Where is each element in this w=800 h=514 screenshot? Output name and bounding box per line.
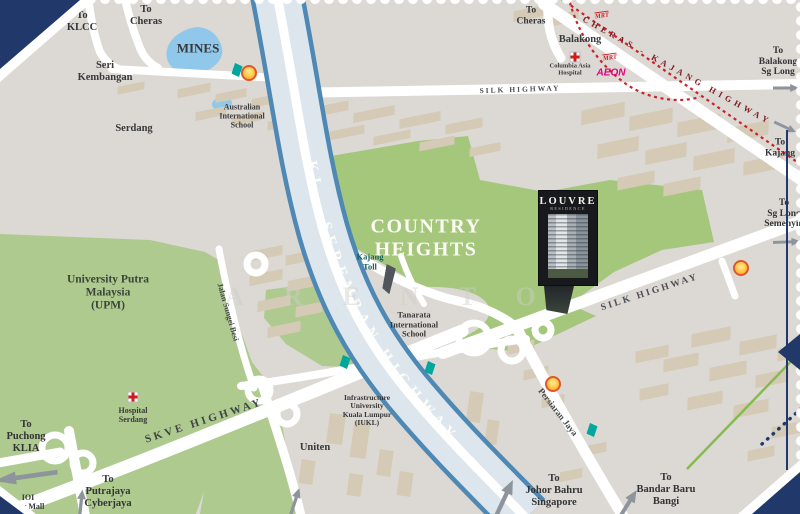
arrow-uniten-south [286, 487, 303, 514]
label-to-johor: To Johor Bahru Singapore [525, 473, 582, 509]
building-block [373, 129, 410, 145]
building-block [755, 369, 788, 388]
building-block [347, 473, 364, 497]
label-kajang-toll: Kajang Toll [357, 252, 384, 271]
label-to-bandar-baru: To Bandar Baru Bangi [636, 472, 695, 508]
building-block [663, 176, 701, 196]
building-block [311, 100, 348, 117]
label-seri-kembangan: Seri Kembangan [78, 60, 133, 84]
label-to-putrajaya: To Putrajaya Cyberjaya [84, 474, 131, 510]
building-block [484, 419, 499, 444]
building-block [251, 245, 282, 261]
building-block [399, 111, 441, 129]
road-skve [0, 331, 462, 514]
building-block [739, 334, 777, 355]
petronas-station-icon [587, 423, 598, 437]
building-block [267, 116, 294, 130]
building-block [445, 117, 482, 134]
label-silk-highway-top: SILK HIGHWAY [479, 84, 560, 95]
label-hospital-serdang: Hospital Serdang [119, 406, 148, 424]
label-mines: MINES [177, 42, 220, 57]
label-tanarata: Tanarata International School [390, 311, 438, 340]
mrt-logo: MRT [603, 54, 618, 63]
building-block [629, 108, 673, 131]
label-columbia-hospital: Columbia Asia Hospital [550, 63, 591, 78]
location-map: KL - SEREMBAN HIGHWAY To KLCC To Cheras … [0, 0, 800, 514]
building-block [733, 399, 768, 419]
building-block [287, 98, 314, 112]
mrt-logo: MRT [595, 12, 610, 21]
building-block [597, 136, 639, 159]
label-to-balakong-sg-long: To Balakong Sg Long [759, 46, 798, 78]
shell-station-icon [241, 65, 257, 81]
louvre-title: LOUVRE [539, 196, 597, 207]
building-block [177, 83, 210, 98]
building-block [329, 125, 364, 141]
label-to-puchong-klia: To Puchong KLIA [6, 419, 45, 455]
label-silk-highway-main: SILK HIGHWAY [600, 272, 701, 314]
building-block [663, 353, 698, 373]
building-block [298, 459, 315, 485]
building-block [583, 442, 606, 456]
arrow-to-puchong [0, 466, 59, 488]
building-block [376, 449, 393, 477]
building-block [693, 148, 735, 171]
building-block [396, 471, 413, 497]
label-to-klcc: To KLCC [67, 10, 97, 34]
label-to-cheras-nw: To Cheras [130, 4, 162, 28]
scalloped-edge-top [0, 0, 800, 6]
label-country-heights: COUNTRY HEIGHTS [371, 215, 482, 260]
building-block [466, 391, 484, 423]
road-to-cheras-n [548, 0, 561, 58]
label-australian-school: Australian International School [219, 102, 264, 129]
label-balakong: Balakong [559, 34, 602, 46]
building-block [450, 427, 467, 455]
watermark: ARENTO [225, 282, 576, 312]
label-to-cheras-n: To Cheras [516, 5, 545, 26]
label-ioi-city-mall: IOI City Mall [12, 493, 45, 511]
aeon-logo: AEON [597, 68, 626, 79]
right-border-line [786, 130, 788, 470]
label-skve-highway: SKVE HIGHWAY [143, 396, 264, 446]
label-iukl: Infrastructure University Kuala Lumpur (… [343, 394, 392, 428]
scalloped-edge-right [794, 0, 800, 514]
building-block [581, 102, 625, 125]
label-serdang: Serdang [115, 123, 152, 135]
label-persiaran-jaya: Persiaran Jaya [536, 386, 580, 438]
building-block [428, 397, 448, 431]
label-uniten: Uniten [300, 442, 330, 454]
label-upm: University Putra Malaysia (UPM) [67, 274, 149, 313]
building-block [617, 170, 655, 190]
columbia-hospital-cross-icon [571, 53, 580, 62]
petronas-station-icon [425, 361, 436, 375]
building-block [507, 339, 534, 354]
building-block [549, 10, 578, 27]
building-block [469, 142, 500, 157]
building-block [677, 114, 721, 137]
louvre-marker-box: LOUVRE RESIDENCE [538, 190, 598, 286]
louvre-building-image [548, 214, 588, 278]
building-block [285, 250, 312, 265]
building-block [645, 142, 687, 165]
arrow-to-johor [490, 477, 519, 514]
building-block [639, 383, 668, 401]
shell-station-icon [733, 260, 749, 276]
petronas-station-icon [340, 355, 351, 369]
building-block [709, 360, 747, 381]
label-to-kajang: To Kajang [765, 137, 795, 158]
louvre-subtitle: RESIDENCE [543, 207, 592, 211]
building-block [267, 321, 300, 338]
shell-station-icon [545, 376, 561, 392]
building-block [523, 366, 548, 381]
building-block [691, 326, 731, 348]
building-block [419, 136, 454, 152]
building-block [687, 391, 722, 411]
building-block [353, 105, 395, 123]
serdang-hospital-cross-icon [129, 393, 138, 402]
building-block [747, 445, 774, 461]
